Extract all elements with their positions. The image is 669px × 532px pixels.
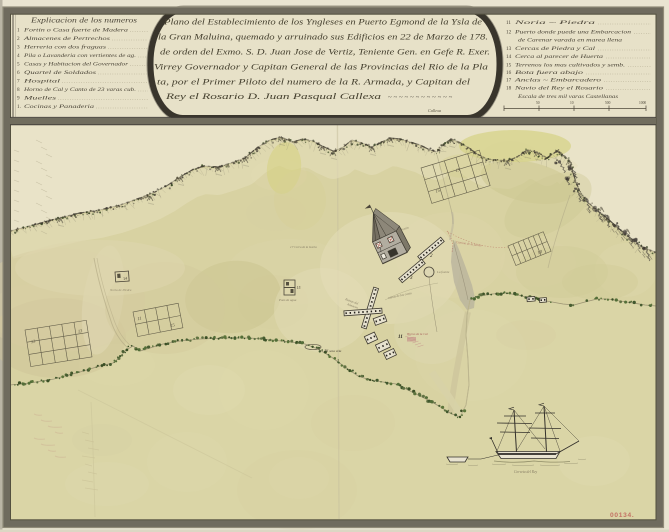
svg-text:500: 500 (605, 101, 611, 105)
svg-text:17 Cerca de la huerta: 17 Cerca de la huerta (290, 245, 317, 249)
svg-text:Bota fuera abajo: Bota fuera abajo (515, 71, 584, 76)
svg-text:9: 9 (17, 96, 20, 102)
svg-text:Rey el Rosario D. Juan Pasqual: Rey el Rosario D. Juan Pasqual Callexa (164, 91, 381, 101)
svg-text:de orden del Exmo. S. D. Juan: de orden del Exmo. S. D. Juan Jose de Ve… (160, 47, 490, 57)
svg-text:Fortin o Casa fuerte de Madera: Fortin o Casa fuerte de Madera (22, 29, 128, 34)
svg-text:3: 3 (17, 45, 20, 51)
svg-text:Puerto donde puede una Embarca: Puerto donde puede una Embarcacion (513, 31, 631, 36)
svg-text:5: 5 (17, 62, 20, 68)
svg-text:4: 4 (17, 53, 20, 59)
svg-text:Explicacion de los numeros: Explicacion de los numeros (30, 17, 138, 25)
svg-text:1.: 1. (17, 104, 21, 110)
svg-text:13: 13 (506, 46, 512, 52)
svg-text:16 sota vela: 16 sota vela (324, 348, 342, 353)
svg-text:16: 16 (506, 70, 512, 76)
svg-text:11: 11 (398, 335, 403, 340)
svg-text:15: 15 (506, 63, 512, 69)
svg-text:Noria ~ Piedra: Noria ~ Piedra (512, 21, 596, 26)
svg-text:Casas y Habitacion del Governa: Casas y Habitacion del Governador (24, 63, 128, 68)
svg-text:Plano del Establecimiento de l: Plano del Establecimiento de los Ynglese… (163, 17, 482, 27)
svg-text:Terrenos los mas cultivados y: Terrenos los mas cultivados y semb. (515, 64, 625, 69)
svg-text:Pila o Lavanderia con vertient: Pila o Lavanderia con vertientes de ag. (23, 54, 136, 59)
svg-text:1000: 1000 (639, 101, 646, 105)
svg-text:Escala de tres mil varas Caste: Escala de tres mil varas Castellanas (517, 95, 618, 100)
svg-text:7: 7 (17, 79, 20, 85)
svg-text:de Carenar varada en marea lle: de Carenar varada en marea llena (518, 39, 623, 44)
svg-text:Noria de Piedra: Noria de Piedra (109, 288, 132, 292)
svg-text:Navio del Rey el Rosario: Navio del Rey el Rosario (513, 87, 604, 92)
svg-text:Herreria con dos fraguas: Herreria con dos fraguas (22, 46, 106, 51)
svg-text:12: 12 (506, 30, 512, 36)
svg-text:Cerca al parecer de Huerta: Cerca al parecer de Huerta (515, 55, 604, 60)
svg-text:La fuente: La fuente (436, 270, 450, 274)
svg-text:15: 15 (297, 285, 301, 290)
svg-text:10: 10 (570, 101, 574, 105)
svg-text:17: 17 (506, 78, 512, 84)
svg-text:8: 8 (17, 87, 20, 93)
svg-text:Cercas de Piedra y Cal: Cercas de Piedra y Cal (515, 47, 596, 52)
svg-text:00134.: 00134. (610, 512, 634, 519)
svg-text:ta, por el Primer Piloto del n: ta, por el Primer Piloto del numero de l… (157, 77, 471, 87)
svg-text:Pozo de agua: Pozo de agua (278, 298, 297, 302)
svg-text:1: 1 (17, 28, 20, 34)
svg-text:Horno de la Cal: Horno de la Cal (406, 332, 428, 336)
svg-text:11: 11 (506, 20, 511, 26)
svg-text:la Gran Maluina, quemado y arr: la Gran Maluina, quemado y arruinado sus… (158, 32, 488, 42)
svg-text:50: 50 (536, 101, 540, 105)
svg-text:Muelles: Muelles (22, 97, 56, 102)
svg-text:18: 18 (506, 86, 512, 92)
svg-text:Anclas ~ Embarcadero: Anclas ~ Embarcadero (513, 79, 602, 84)
svg-text:Callexa: Callexa (428, 108, 441, 113)
svg-text:~~~~~~~~~~~~: ~~~~~~~~~~~~ (388, 94, 454, 101)
svg-text:Virrey Governador y Capitan Ge: Virrey Governador y Capitan General de l… (154, 62, 489, 72)
svg-text:Corveta del Rey: Corveta del Rey (514, 470, 538, 474)
svg-text:6: 6 (17, 70, 20, 76)
svg-text:Almacenes de Pertrechos: Almacenes de Pertrechos (22, 37, 110, 42)
svg-text:Hospital: Hospital (22, 80, 61, 85)
svg-text:Horno de Cal y Canto de 23 var: Horno de Cal y Canto de 23 varas cub. (23, 88, 136, 93)
svg-text:2: 2 (17, 36, 20, 42)
svg-text:14: 14 (506, 54, 512, 60)
svg-text:Quartel de Soldados: Quartel de Soldados (24, 71, 96, 76)
svg-text:Cocinas y Panaderia: Cocinas y Panaderia (24, 105, 95, 110)
